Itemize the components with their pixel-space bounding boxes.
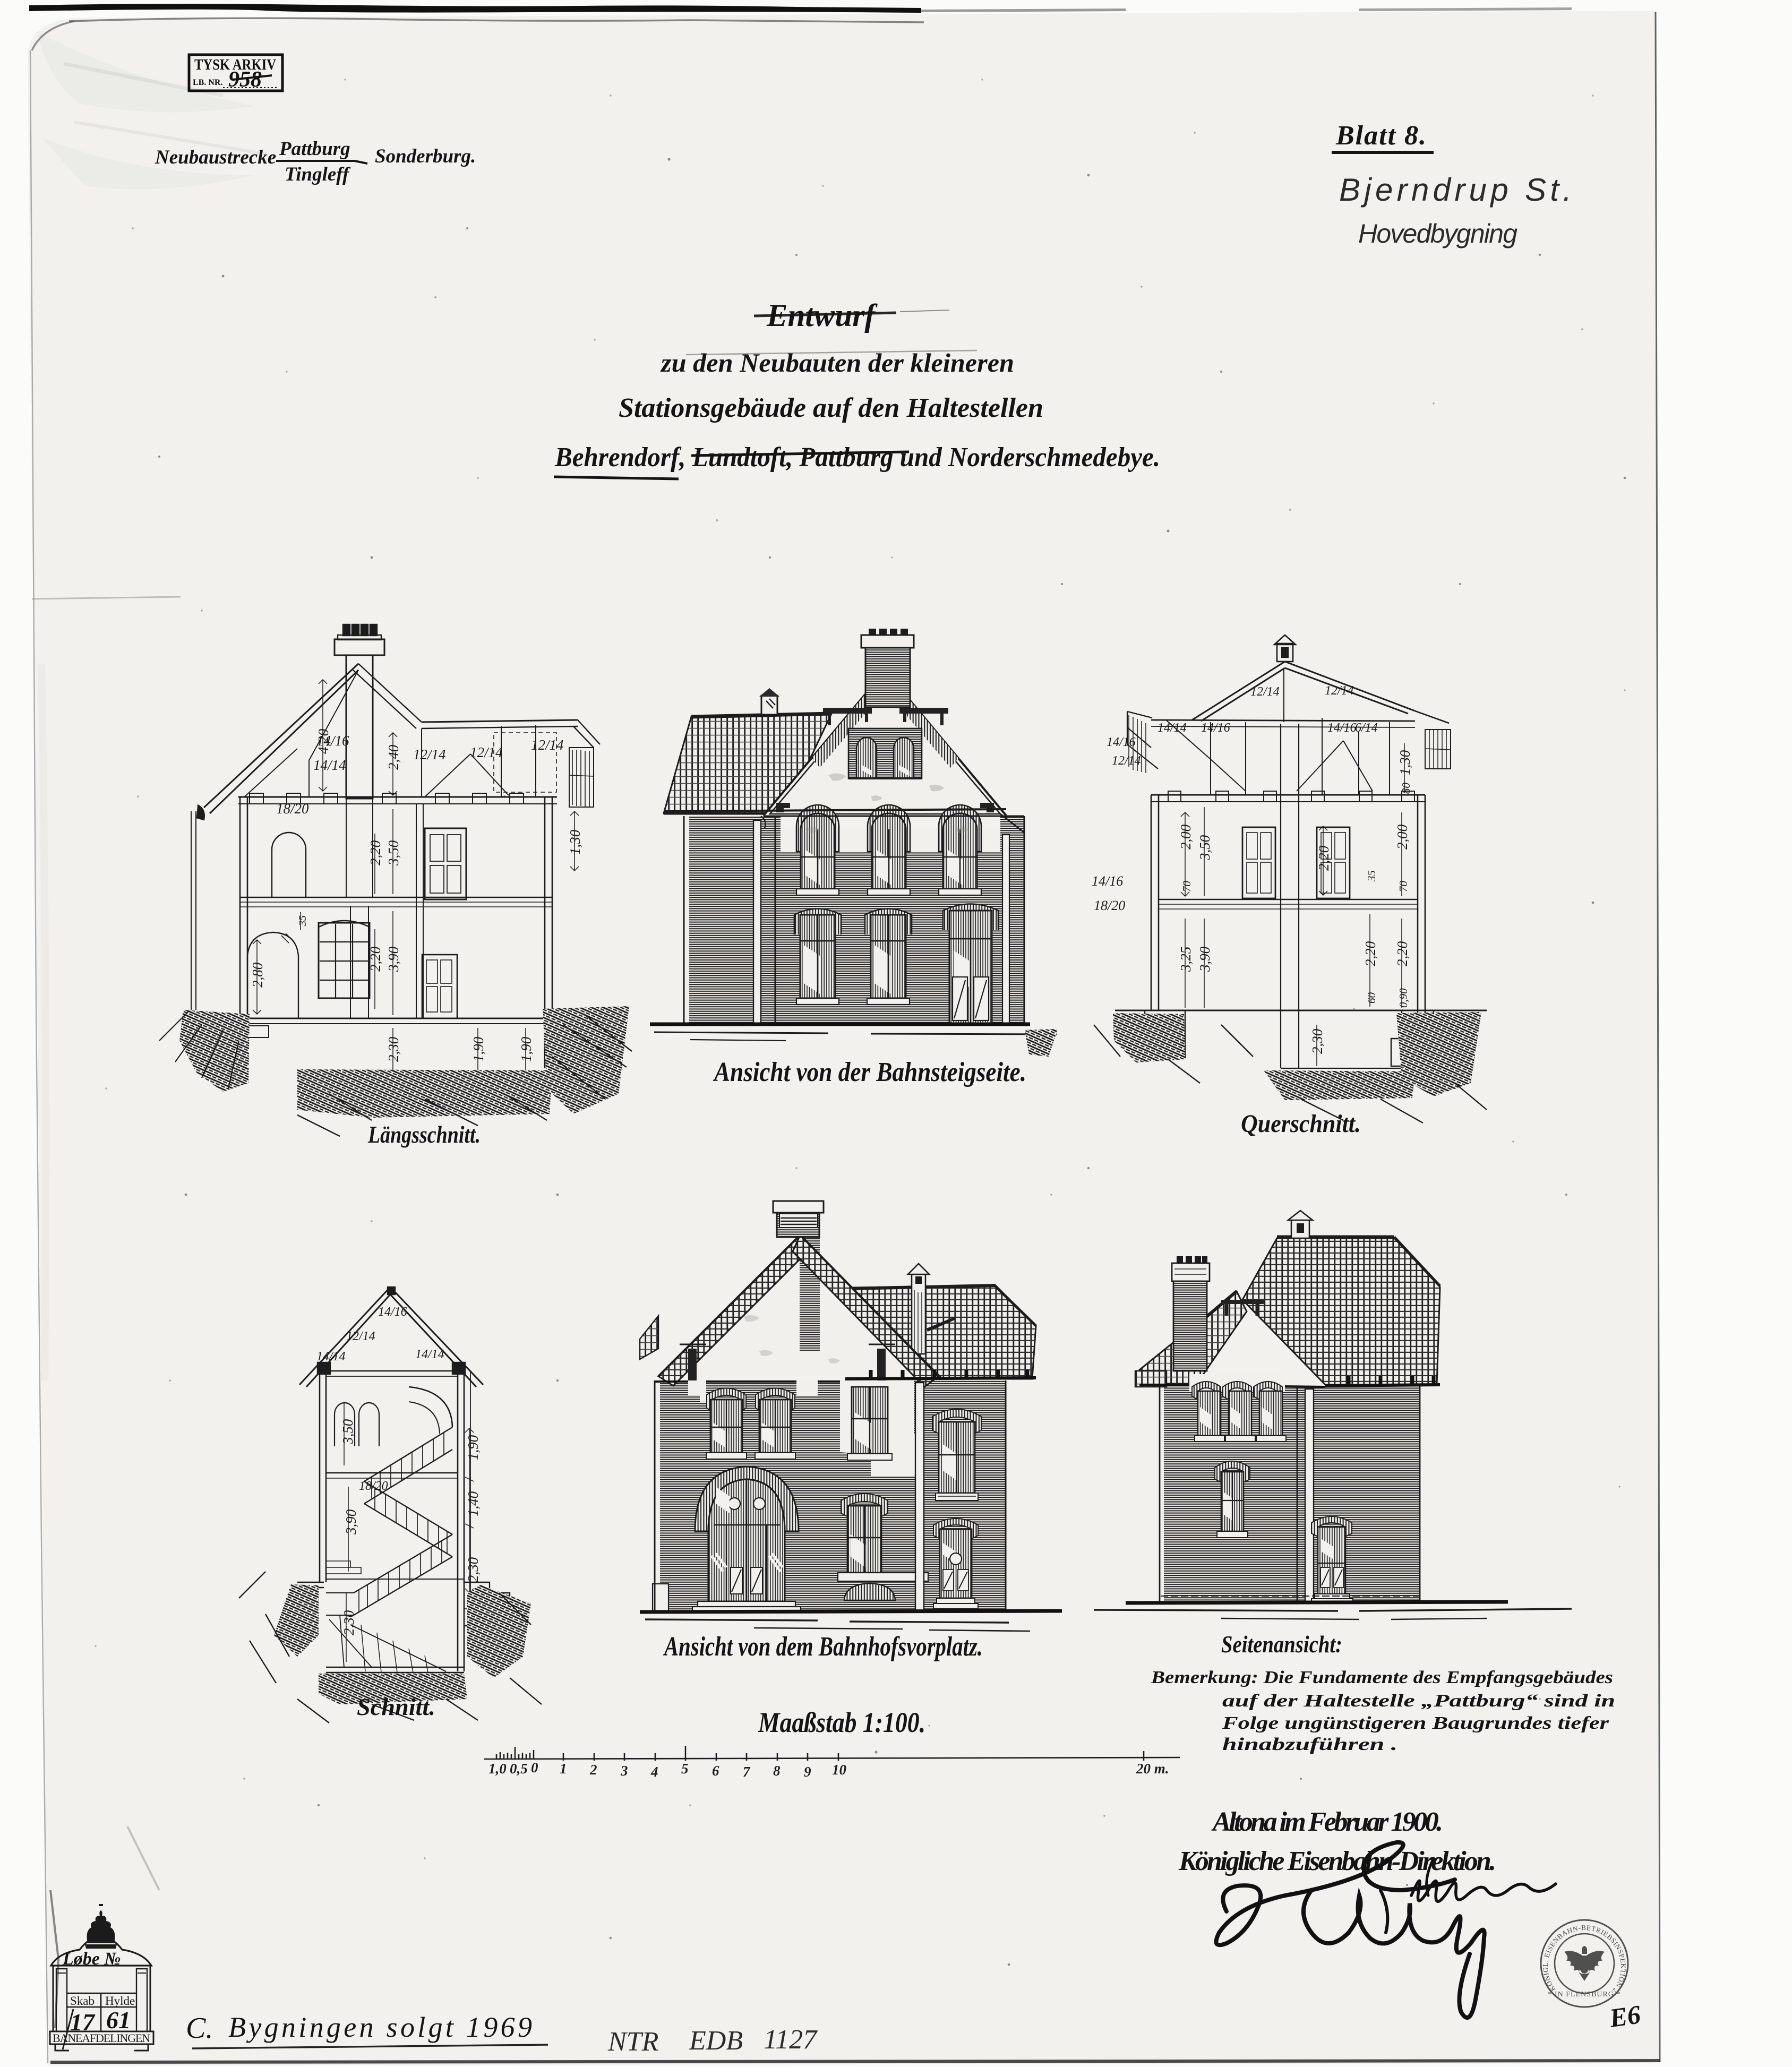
- svg-text:Königliche Eisenbahn-Direktion: Königliche Eisenbahn-Direktion.: [1178, 1846, 1496, 1876]
- svg-text:Pattburg: Pattburg: [279, 138, 350, 160]
- svg-text:hinabzuführen .: hinabzuführen .: [1222, 1735, 1397, 1754]
- svg-text:Folge ungünstigeren Baugrundes: Folge ungünstigeren Baugrundes tiefer: [1222, 1713, 1609, 1733]
- svg-text:14/14: 14/14: [313, 757, 346, 773]
- svg-text:Blatt 8.: Blatt 8.: [1335, 121, 1427, 151]
- svg-text:14/16: 14/16: [1327, 721, 1357, 735]
- svg-text:70: 70: [1180, 881, 1193, 893]
- svg-text:6: 6: [712, 1763, 719, 1779]
- svg-text:LB. NR.: LB. NR.: [193, 78, 222, 87]
- svg-text:Neubaustrecke: Neubaustrecke: [155, 147, 276, 168]
- svg-text:2,00: 2,00: [1178, 824, 1194, 850]
- svg-text:1,30: 1,30: [567, 829, 583, 855]
- svg-text:E6: E6: [1607, 1999, 1643, 2033]
- svg-text:Tingleff: Tingleff: [285, 164, 351, 185]
- svg-text:35: 35: [297, 915, 308, 927]
- svg-text:2,00: 2,00: [1394, 824, 1410, 850]
- svg-text:61: 61: [106, 2006, 131, 2034]
- svg-text:12/14: 12/14: [1325, 684, 1354, 698]
- svg-text:1127: 1127: [764, 2025, 818, 2055]
- svg-text:3,50: 3,50: [340, 1419, 356, 1445]
- svg-text:Querschnitt.: Querschnitt.: [1241, 1110, 1361, 1138]
- svg-text:2,80: 2,80: [250, 962, 265, 988]
- svg-text:Bygningen solgt 1969: Bygningen solgt 1969: [228, 2011, 534, 2043]
- svg-text:* IN FLENSBURG *: * IN FLENSBURG *: [1548, 1991, 1621, 1999]
- svg-text:2,20: 2,20: [1394, 941, 1410, 966]
- svg-text:auf der Haltestelle „Pattburg“: auf der Haltestelle „Pattburg“ sind in: [1222, 1691, 1615, 1711]
- svg-text:12/14: 12/14: [531, 737, 564, 753]
- svg-text:1,90: 1,90: [465, 1435, 481, 1460]
- svg-text:8: 8: [773, 1763, 781, 1779]
- svg-text:18/20: 18/20: [276, 801, 309, 817]
- svg-text:Behrendorf, Lundtoft, Pattburg: Behrendorf, Lundtoft, Pattburg und Norde…: [554, 442, 1160, 473]
- svg-text:80: 80: [1400, 783, 1412, 794]
- svg-text:0: 0: [531, 1760, 538, 1776]
- svg-text:Hovedbygning: Hovedbygning: [1358, 219, 1517, 248]
- svg-text:12/14: 12/14: [413, 747, 446, 762]
- svg-text:12/14: 12/14: [346, 1330, 375, 1343]
- svg-text:4: 4: [650, 1764, 658, 1780]
- svg-text:2,20: 2,20: [1362, 941, 1378, 966]
- svg-text:14/14: 14/14: [1157, 721, 1187, 735]
- svg-text:12/14: 12/14: [1250, 685, 1280, 699]
- svg-text:2,30: 2,30: [465, 1557, 481, 1582]
- svg-text:Hylde: Hylde: [105, 1994, 135, 2008]
- svg-text:2,30: 2,30: [385, 1036, 401, 1062]
- svg-text:20 m.: 20 m.: [1136, 1761, 1169, 1777]
- svg-text:Seitenansicht:: Seitenansicht:: [1221, 1631, 1342, 1658]
- svg-text:0,5: 0,5: [510, 1761, 528, 1777]
- svg-text:Skab: Skab: [70, 1994, 95, 2008]
- svg-text:14/14: 14/14: [316, 1350, 346, 1363]
- svg-text:3,50: 3,50: [385, 840, 401, 866]
- svg-text:7: 7: [743, 1764, 751, 1780]
- svg-text:18/20: 18/20: [359, 1479, 388, 1493]
- svg-text:2: 2: [589, 1762, 597, 1778]
- svg-text:5: 5: [681, 1761, 689, 1777]
- svg-text:Schnitt.: Schnitt.: [357, 1693, 435, 1720]
- svg-text:Maaßstab 1:100.: Maaßstab 1:100.: [758, 1706, 925, 1738]
- svg-text:Bemerkung: Die Fundamente des: Bemerkung: Die Fundamente des Empfangsge…: [1151, 1668, 1613, 1687]
- svg-text:1,90: 1,90: [470, 1036, 486, 1062]
- svg-text:1: 1: [560, 1761, 567, 1777]
- svg-text:Sonderburg.: Sonderburg.: [375, 145, 476, 167]
- svg-text:14/14: 14/14: [415, 1348, 444, 1361]
- svg-text:1,40: 1,40: [465, 1491, 481, 1516]
- svg-text:NTR: NTR: [607, 2027, 658, 2057]
- svg-text:1,90: 1,90: [518, 1036, 534, 1062]
- svg-text:Ansicht von dem Bahnhofsvorpla: Ansicht von dem Bahnhofsvorplatz.: [663, 1632, 983, 1662]
- svg-text:2,40: 2,40: [385, 744, 401, 770]
- svg-text:Stationsgebäude auf den Haltes: Stationsgebäude auf den Haltestellen: [619, 393, 1043, 423]
- svg-text:Altona im Februar 1900.: Altona im Februar 1900.: [1211, 1807, 1443, 1837]
- svg-text:3,90: 3,90: [343, 1509, 359, 1535]
- svg-text:2,30: 2,30: [1309, 1028, 1325, 1054]
- svg-text:EDB: EDB: [689, 2026, 743, 2056]
- svg-text:14/16: 14/16: [1107, 735, 1136, 749]
- svg-text:9: 9: [804, 1764, 811, 1780]
- svg-text:3,90: 3,90: [385, 946, 401, 972]
- svg-text:2,20: 2,20: [367, 840, 383, 865]
- svg-text:18/20: 18/20: [1094, 898, 1125, 913]
- svg-text:3,25: 3,25: [1178, 947, 1194, 972]
- svg-text:3: 3: [620, 1763, 628, 1779]
- svg-text:Ansicht von der Bahnsteigseite: Ansicht von der Bahnsteigseite.: [713, 1057, 1026, 1087]
- svg-text:0,90: 0,90: [1397, 988, 1410, 1008]
- svg-text:12/14: 12/14: [1112, 754, 1141, 768]
- svg-text:2,20: 2,20: [367, 946, 383, 972]
- svg-text:3,50: 3,50: [1197, 835, 1213, 861]
- svg-text:12/14: 12/14: [470, 744, 503, 760]
- svg-text:C.: C.: [186, 2012, 213, 2045]
- svg-text:3,90: 3,90: [1197, 946, 1213, 972]
- svg-text:2,20: 2,20: [1316, 845, 1332, 871]
- svg-text:BANEAFDELINGEN: BANEAFDELINGEN: [53, 2031, 150, 2045]
- svg-text:60: 60: [1365, 992, 1378, 1004]
- svg-text:2,30: 2,30: [341, 1610, 357, 1635]
- svg-text:Längsschnitt.: Längsschnitt.: [367, 1121, 481, 1148]
- svg-text:35: 35: [1365, 870, 1378, 882]
- svg-text:70: 70: [1397, 881, 1410, 893]
- svg-text:14/16: 14/16: [1201, 721, 1230, 735]
- svg-text:14/16: 14/16: [378, 1305, 407, 1319]
- svg-text:1,30: 1,30: [1397, 750, 1413, 775]
- svg-text:10: 10: [832, 1762, 847, 1778]
- svg-text:14/16: 14/16: [1092, 873, 1123, 889]
- svg-text:1,0: 1,0: [488, 1761, 507, 1777]
- svg-text:6/14: 6/14: [1355, 721, 1378, 735]
- svg-text:14/16: 14/16: [316, 733, 349, 749]
